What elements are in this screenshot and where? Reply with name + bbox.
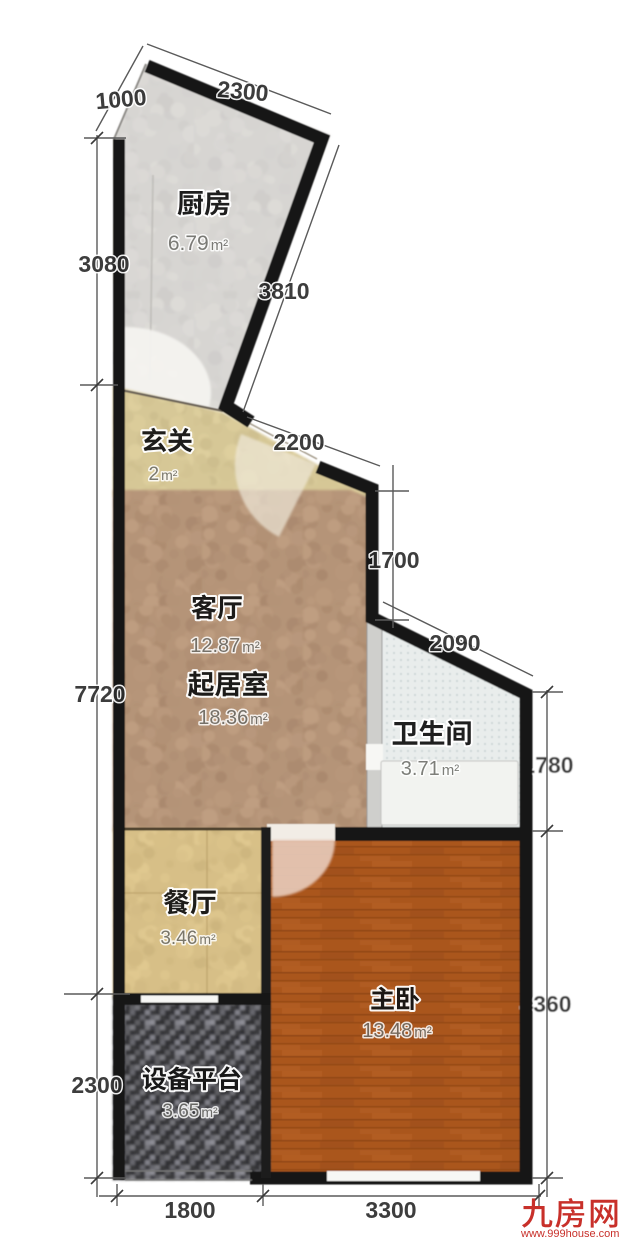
svg-text:3080: 3080 bbox=[78, 251, 129, 277]
svg-text:12.87m²: 12.87m² bbox=[190, 635, 260, 657]
svg-text:1000: 1000 bbox=[94, 84, 147, 114]
svg-text:3810: 3810 bbox=[258, 278, 309, 304]
svg-text:1700: 1700 bbox=[368, 547, 419, 573]
svg-text:7720: 7720 bbox=[74, 681, 125, 707]
svg-text:13.48m²: 13.48m² bbox=[362, 1020, 432, 1042]
svg-text:3.71m²: 3.71m² bbox=[401, 758, 459, 780]
svg-text:3.65m²: 3.65m² bbox=[162, 1101, 218, 1122]
svg-text:2m²: 2m² bbox=[149, 464, 178, 485]
svg-text:2300: 2300 bbox=[71, 1072, 122, 1098]
svg-text:3300: 3300 bbox=[365, 1197, 416, 1223]
svg-text:3.46m²: 3.46m² bbox=[160, 928, 216, 949]
svg-text:www.999house.com: www.999house.com bbox=[520, 1228, 619, 1240]
svg-text:1800: 1800 bbox=[164, 1197, 215, 1223]
svg-text:18.36m²: 18.36m² bbox=[198, 707, 268, 729]
svg-text:2300: 2300 bbox=[216, 76, 269, 106]
svg-text:2090: 2090 bbox=[429, 630, 480, 656]
svg-text:2200: 2200 bbox=[273, 429, 324, 455]
